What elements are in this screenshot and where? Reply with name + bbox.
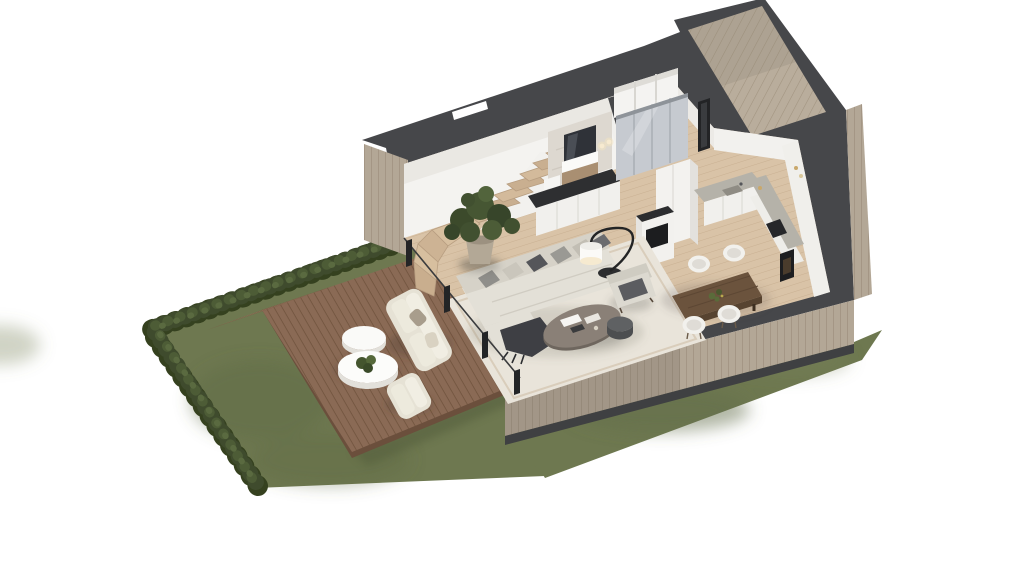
candle [594, 326, 598, 330]
faucet [739, 182, 742, 185]
scene-3d-floorplan [0, 0, 1024, 576]
fireplace-niche-glow [783, 257, 791, 275]
exterior-west-cladding [364, 144, 408, 256]
floorplan-render [0, 0, 1024, 576]
side-table [607, 317, 633, 340]
entry-door-leaf [701, 102, 707, 148]
glass-mullion [406, 239, 412, 267]
counter-jar [758, 186, 762, 190]
shelf-glassware-2 [799, 174, 803, 178]
dining-chair [723, 245, 745, 262]
dining-chair [688, 256, 710, 273]
shelf-glassware [794, 166, 798, 170]
glass-mullion [444, 285, 450, 313]
glass-mullion [482, 331, 488, 359]
glass-mullion [514, 369, 520, 395]
